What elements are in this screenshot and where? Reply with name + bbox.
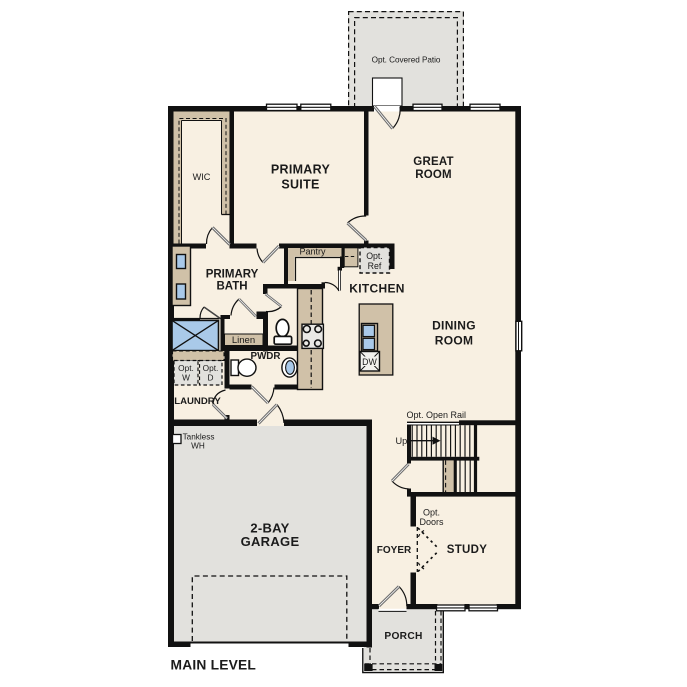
svg-text:FOYER: FOYER	[377, 545, 412, 556]
svg-text:LAUNDRY: LAUNDRY	[174, 396, 221, 407]
svg-text:Doors: Doors	[419, 517, 444, 527]
svg-text:GARAGE: GARAGE	[241, 534, 300, 549]
svg-text:KITCHEN: KITCHEN	[349, 282, 404, 296]
svg-text:MAIN LEVEL: MAIN LEVEL	[171, 657, 257, 672]
svg-text:ROOM: ROOM	[415, 169, 452, 181]
svg-text:DINING: DINING	[432, 319, 476, 333]
svg-text:Tankless: Tankless	[183, 433, 215, 442]
svg-text:Ref: Ref	[368, 261, 382, 271]
svg-text:PRIMARY: PRIMARY	[206, 269, 259, 281]
svg-text:WH: WH	[191, 442, 205, 451]
svg-text:BATH: BATH	[216, 281, 247, 293]
svg-text:Opt.: Opt.	[178, 363, 194, 373]
svg-text:W: W	[182, 373, 190, 383]
svg-text:WIC: WIC	[193, 172, 211, 182]
svg-text:STUDY: STUDY	[447, 544, 488, 556]
svg-text:PRIMARY: PRIMARY	[271, 163, 331, 177]
svg-text:Opt. Covered Patio: Opt. Covered Patio	[372, 56, 441, 65]
svg-text:Pantry: Pantry	[299, 246, 326, 256]
svg-text:GREAT: GREAT	[413, 156, 453, 168]
svg-text:Linen: Linen	[232, 335, 255, 346]
svg-text:PWDR: PWDR	[251, 351, 281, 362]
svg-text:PORCH: PORCH	[384, 631, 422, 642]
svg-text:Up: Up	[396, 436, 408, 446]
svg-text:DW: DW	[362, 357, 377, 367]
svg-text:Opt. Open Rail: Opt. Open Rail	[407, 410, 467, 420]
svg-text:ROOM: ROOM	[435, 334, 474, 348]
svg-text:SUITE: SUITE	[281, 178, 319, 192]
svg-text:Opt.: Opt.	[423, 508, 440, 518]
svg-text:Opt.: Opt.	[366, 251, 383, 261]
svg-text:Opt.: Opt.	[203, 363, 219, 373]
svg-text:D: D	[208, 373, 214, 383]
